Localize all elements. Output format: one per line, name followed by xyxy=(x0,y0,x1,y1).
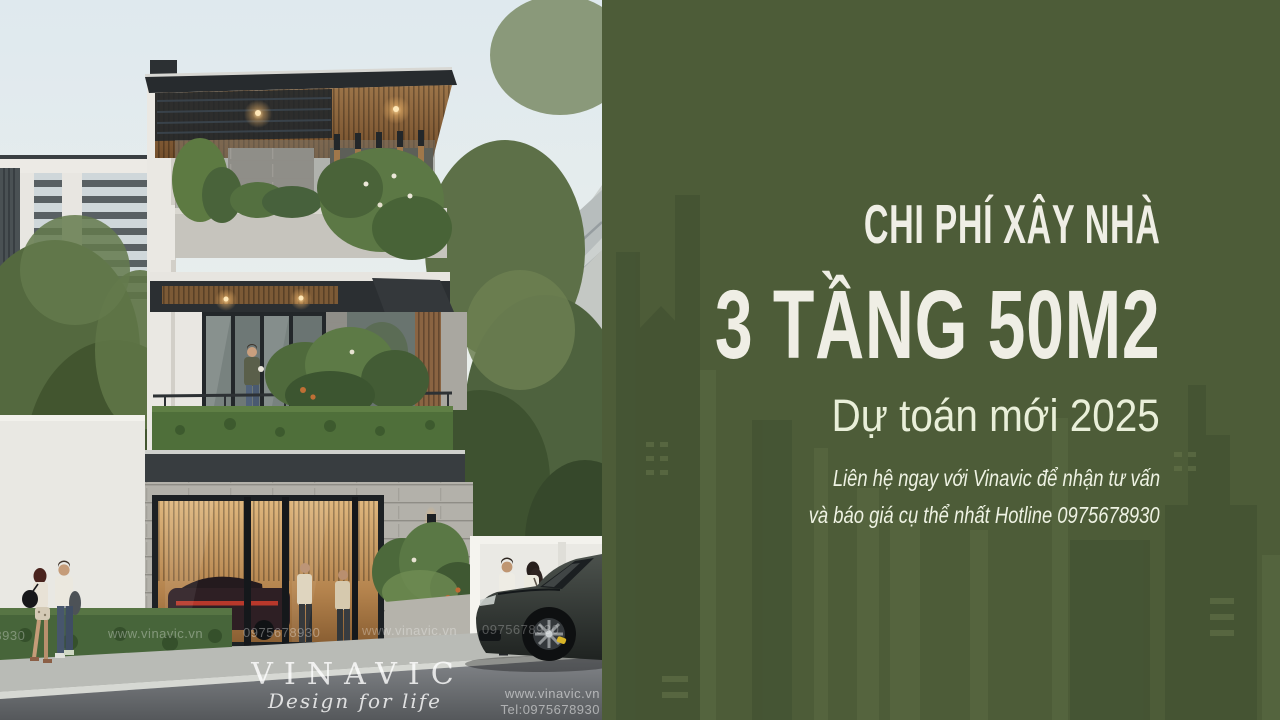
headline-text: 3 TẦNG 50M2 xyxy=(715,276,1160,373)
fence-left-cap xyxy=(0,415,145,421)
text-panel: CHI PHÍ XÂY NHÀ 3 TẦNG 50M2 Dự toán mới … xyxy=(602,0,1280,720)
hedge xyxy=(152,412,453,452)
watermark-phone: 0975678930 xyxy=(0,628,25,643)
floor-slab xyxy=(143,454,465,482)
watermark-site: www.vinavic.vn xyxy=(107,626,203,641)
corner-tel: Tel:0975678930 xyxy=(500,702,600,717)
promo-banner: 0975678930 www.vinavic.vn 0975678930 www… xyxy=(0,0,1280,720)
kicker-text: CHI PHÍ XÂY NHÀ xyxy=(863,197,1160,252)
watermark-site: www.vinavic.vn xyxy=(361,623,457,638)
marketing-copy: CHI PHÍ XÂY NHÀ 3 TẦNG 50M2 Dự toán mới … xyxy=(602,0,1160,720)
brand-tagline: Design for life xyxy=(267,689,442,713)
watermark-phone: 0975678930 xyxy=(243,625,320,640)
contact-note-line2: và báo giá cụ thể nhất Hotline 097567893… xyxy=(721,504,1160,527)
subtitle-text: Dự toán mới 2025 xyxy=(832,393,1160,438)
kicker-line: CHI PHÍ XÂY NHÀ xyxy=(682,197,1161,252)
headline: 3 TẦNG 50M2 xyxy=(602,276,1160,373)
watermark-phone: 0975678930 xyxy=(482,622,559,637)
contact-note-text1: Liên hệ ngay với Vinavic để nhận tư vấn xyxy=(833,467,1160,490)
contact-note-text2: và báo giá cụ thể nhất Hotline 097567893… xyxy=(809,504,1160,527)
subtitle: Dự toán mới 2025 xyxy=(795,393,1160,438)
brand-watermark: VINAVIC xyxy=(250,657,464,692)
corner-site: www.vinavic.vn xyxy=(504,686,600,701)
contact-note-line1: Liên hệ ngay với Vinavic để nhận tư vấn xyxy=(751,467,1160,490)
house-render-photo: 0975678930 www.vinavic.vn 0975678930 www… xyxy=(0,0,602,720)
